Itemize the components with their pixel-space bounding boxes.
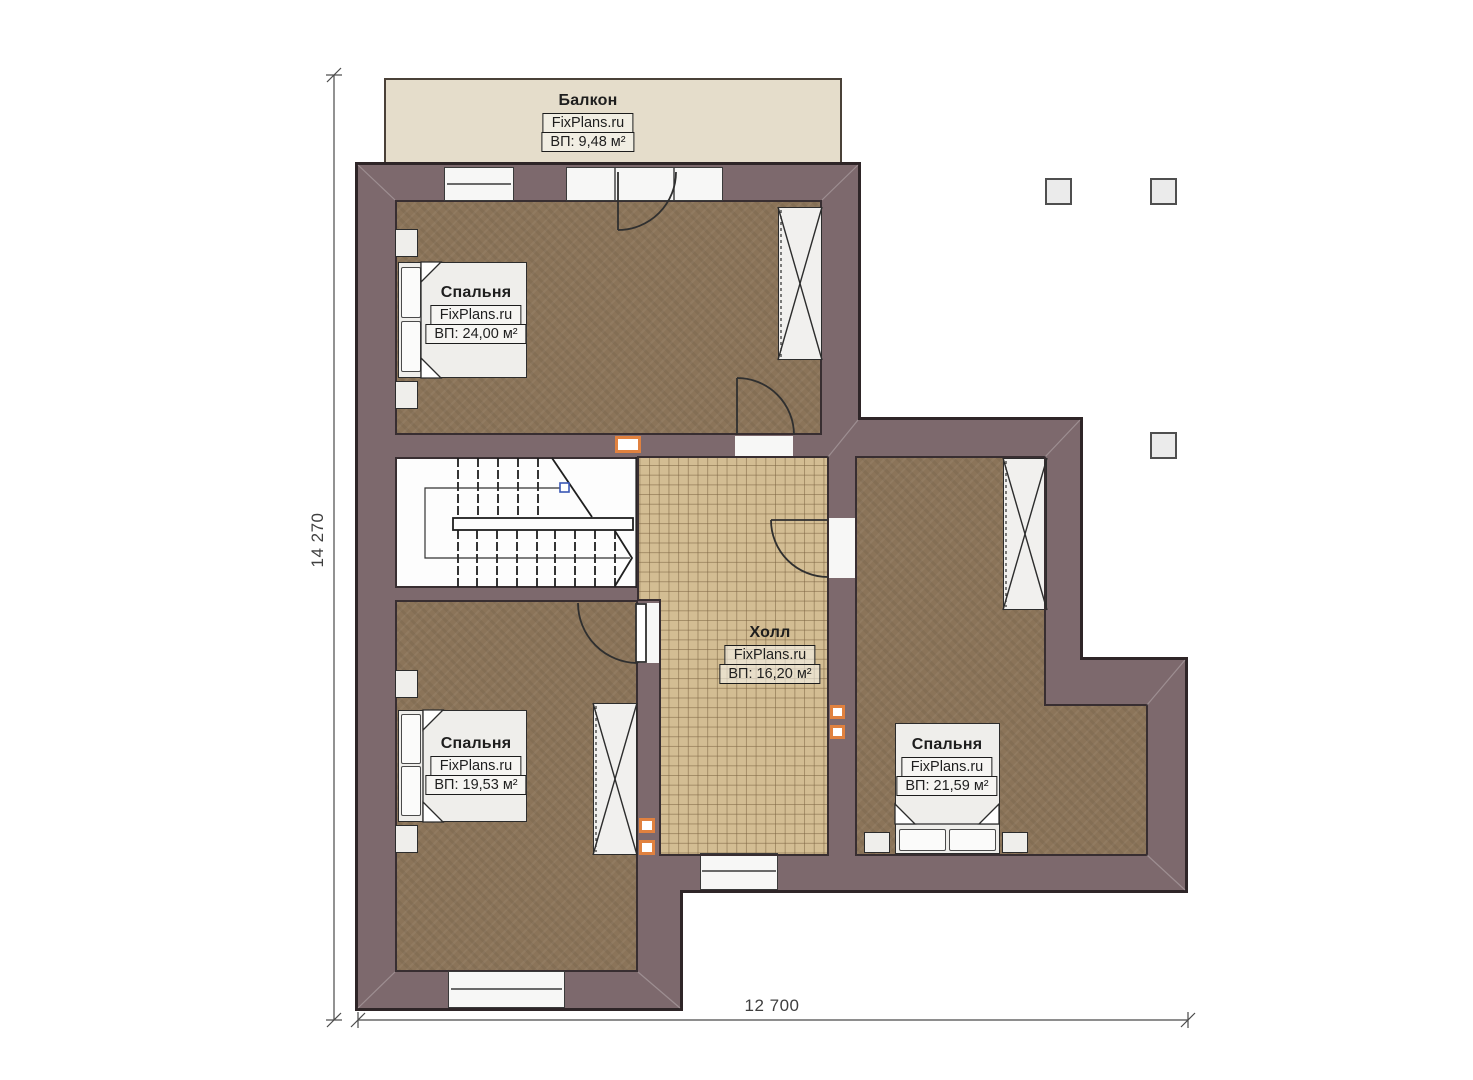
pillow (401, 766, 421, 816)
nightstand (864, 832, 890, 853)
wardrobe-bottom-bedroom (593, 703, 637, 855)
room-name: Спальня (441, 735, 512, 753)
dimension-label-horizontal: 12 700 (745, 996, 800, 1016)
room-name: Спальня (912, 736, 983, 754)
pillow (401, 267, 421, 318)
socket-marker (639, 818, 655, 833)
room-label-hall: Холл FixPlans.ru ВП: 16,20 м² (719, 624, 820, 684)
room-label-balcony: Балкон FixPlans.ru ВП: 9,48 м² (541, 92, 634, 152)
nightstand (395, 670, 418, 698)
pillow (949, 829, 996, 851)
area-box: ВП: 21,59 м² (896, 776, 997, 796)
vent-square (1150, 432, 1177, 459)
floor-stairwell (395, 457, 638, 588)
vent-square (1045, 178, 1072, 205)
balcony-door-glazing (566, 167, 723, 201)
room-name: Холл (750, 624, 791, 642)
socket-marker (830, 725, 845, 739)
room-name: Спальня (441, 284, 512, 302)
room-name: Балкон (558, 92, 617, 110)
pillow (401, 714, 421, 764)
socket-marker (615, 436, 641, 453)
pillow (899, 829, 946, 851)
brand-box: FixPlans.ru (431, 756, 522, 776)
brand-box: FixPlans.ru (902, 757, 993, 777)
room-label-bedroom-bottom: Спальня FixPlans.ru ВП: 19,53 м² (425, 735, 526, 795)
window-bedroom-bottom (448, 971, 565, 1008)
wardrobe-right-bedroom (1003, 458, 1047, 610)
pillow (401, 321, 421, 372)
door-gap-bedroom-top (735, 436, 793, 456)
brand-box: FixPlans.ru (725, 645, 816, 665)
area-box: ВП: 19,53 м² (425, 775, 526, 795)
area-box: ВП: 24,00 м² (425, 324, 526, 344)
floor-plan-page: { "plan": { "brand": "FixPlans.ru", "roo… (0, 0, 1473, 1080)
brand-box: FixPlans.ru (543, 113, 634, 133)
area-box: ВП: 16,20 м² (719, 664, 820, 684)
room-label-bedroom-right: Спальня FixPlans.ru ВП: 21,59 м² (896, 736, 997, 796)
window-hall-bottom (700, 853, 778, 890)
room-label-bedroom-top: Спальня FixPlans.ru ВП: 24,00 м² (425, 284, 526, 344)
nightstand (395, 825, 418, 853)
nightstand (395, 229, 418, 257)
vent-square (1150, 178, 1177, 205)
door-gap-bedroom-bottom (639, 603, 659, 663)
nightstand (395, 381, 418, 409)
brand-box: FixPlans.ru (431, 305, 522, 325)
door-gap-bedroom-right (829, 518, 855, 578)
socket-marker (639, 840, 655, 855)
area-box: ВП: 9,48 м² (541, 132, 634, 152)
dimension-label-vertical: 14 270 (308, 513, 328, 568)
wardrobe-top-bedroom (778, 207, 822, 360)
nightstand (1002, 832, 1028, 853)
socket-marker (830, 705, 845, 719)
window-top-bedroom (444, 167, 514, 201)
